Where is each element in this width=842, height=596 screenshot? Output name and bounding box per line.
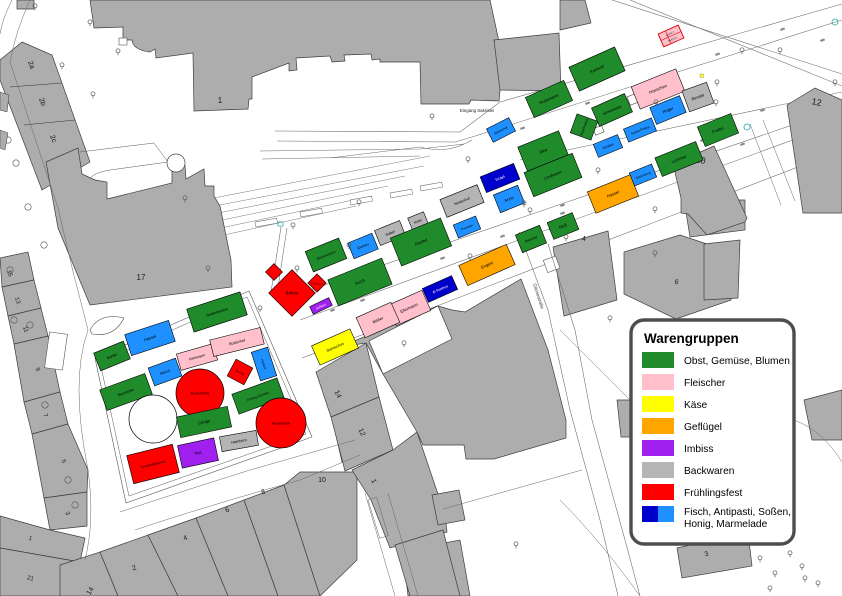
svg-text:Bühne: Bühne (286, 290, 299, 295)
svg-text:Imbiss: Imbiss (684, 444, 713, 455)
svg-text:Honig, Marmelade: Honig, Marmelade (684, 519, 768, 530)
svg-text:Warengruppen: Warengruppen (644, 331, 739, 346)
svg-text:12: 12 (811, 96, 823, 108)
svg-text:Ausschank: Ausschank (191, 392, 210, 396)
svg-text:Käse: Käse (684, 400, 708, 411)
svg-text:Bäckstage: Bäckstage (310, 281, 324, 285)
svg-text:4: 4 (582, 236, 586, 243)
svg-text:Fleischer: Fleischer (684, 378, 726, 389)
svg-text:Fisch, Antipasti, Soßen,: Fisch, Antipasti, Soßen, (684, 507, 791, 518)
svg-text:1: 1 (218, 96, 223, 105)
svg-text:Backwaren: Backwaren (684, 466, 734, 477)
svg-text:Eingang Sakristei: Eingang Sakristei (460, 108, 494, 113)
svg-text:10: 10 (318, 477, 326, 484)
svg-text:Ausschank: Ausschank (272, 422, 291, 426)
svg-text:Obst, Gemüse, Blumen: Obst, Gemüse, Blumen (684, 356, 790, 367)
svg-text:Geflügel: Geflügel (684, 422, 722, 433)
svg-text:17: 17 (137, 273, 146, 282)
svg-text:Frühlingsfest: Frühlingsfest (684, 488, 742, 499)
